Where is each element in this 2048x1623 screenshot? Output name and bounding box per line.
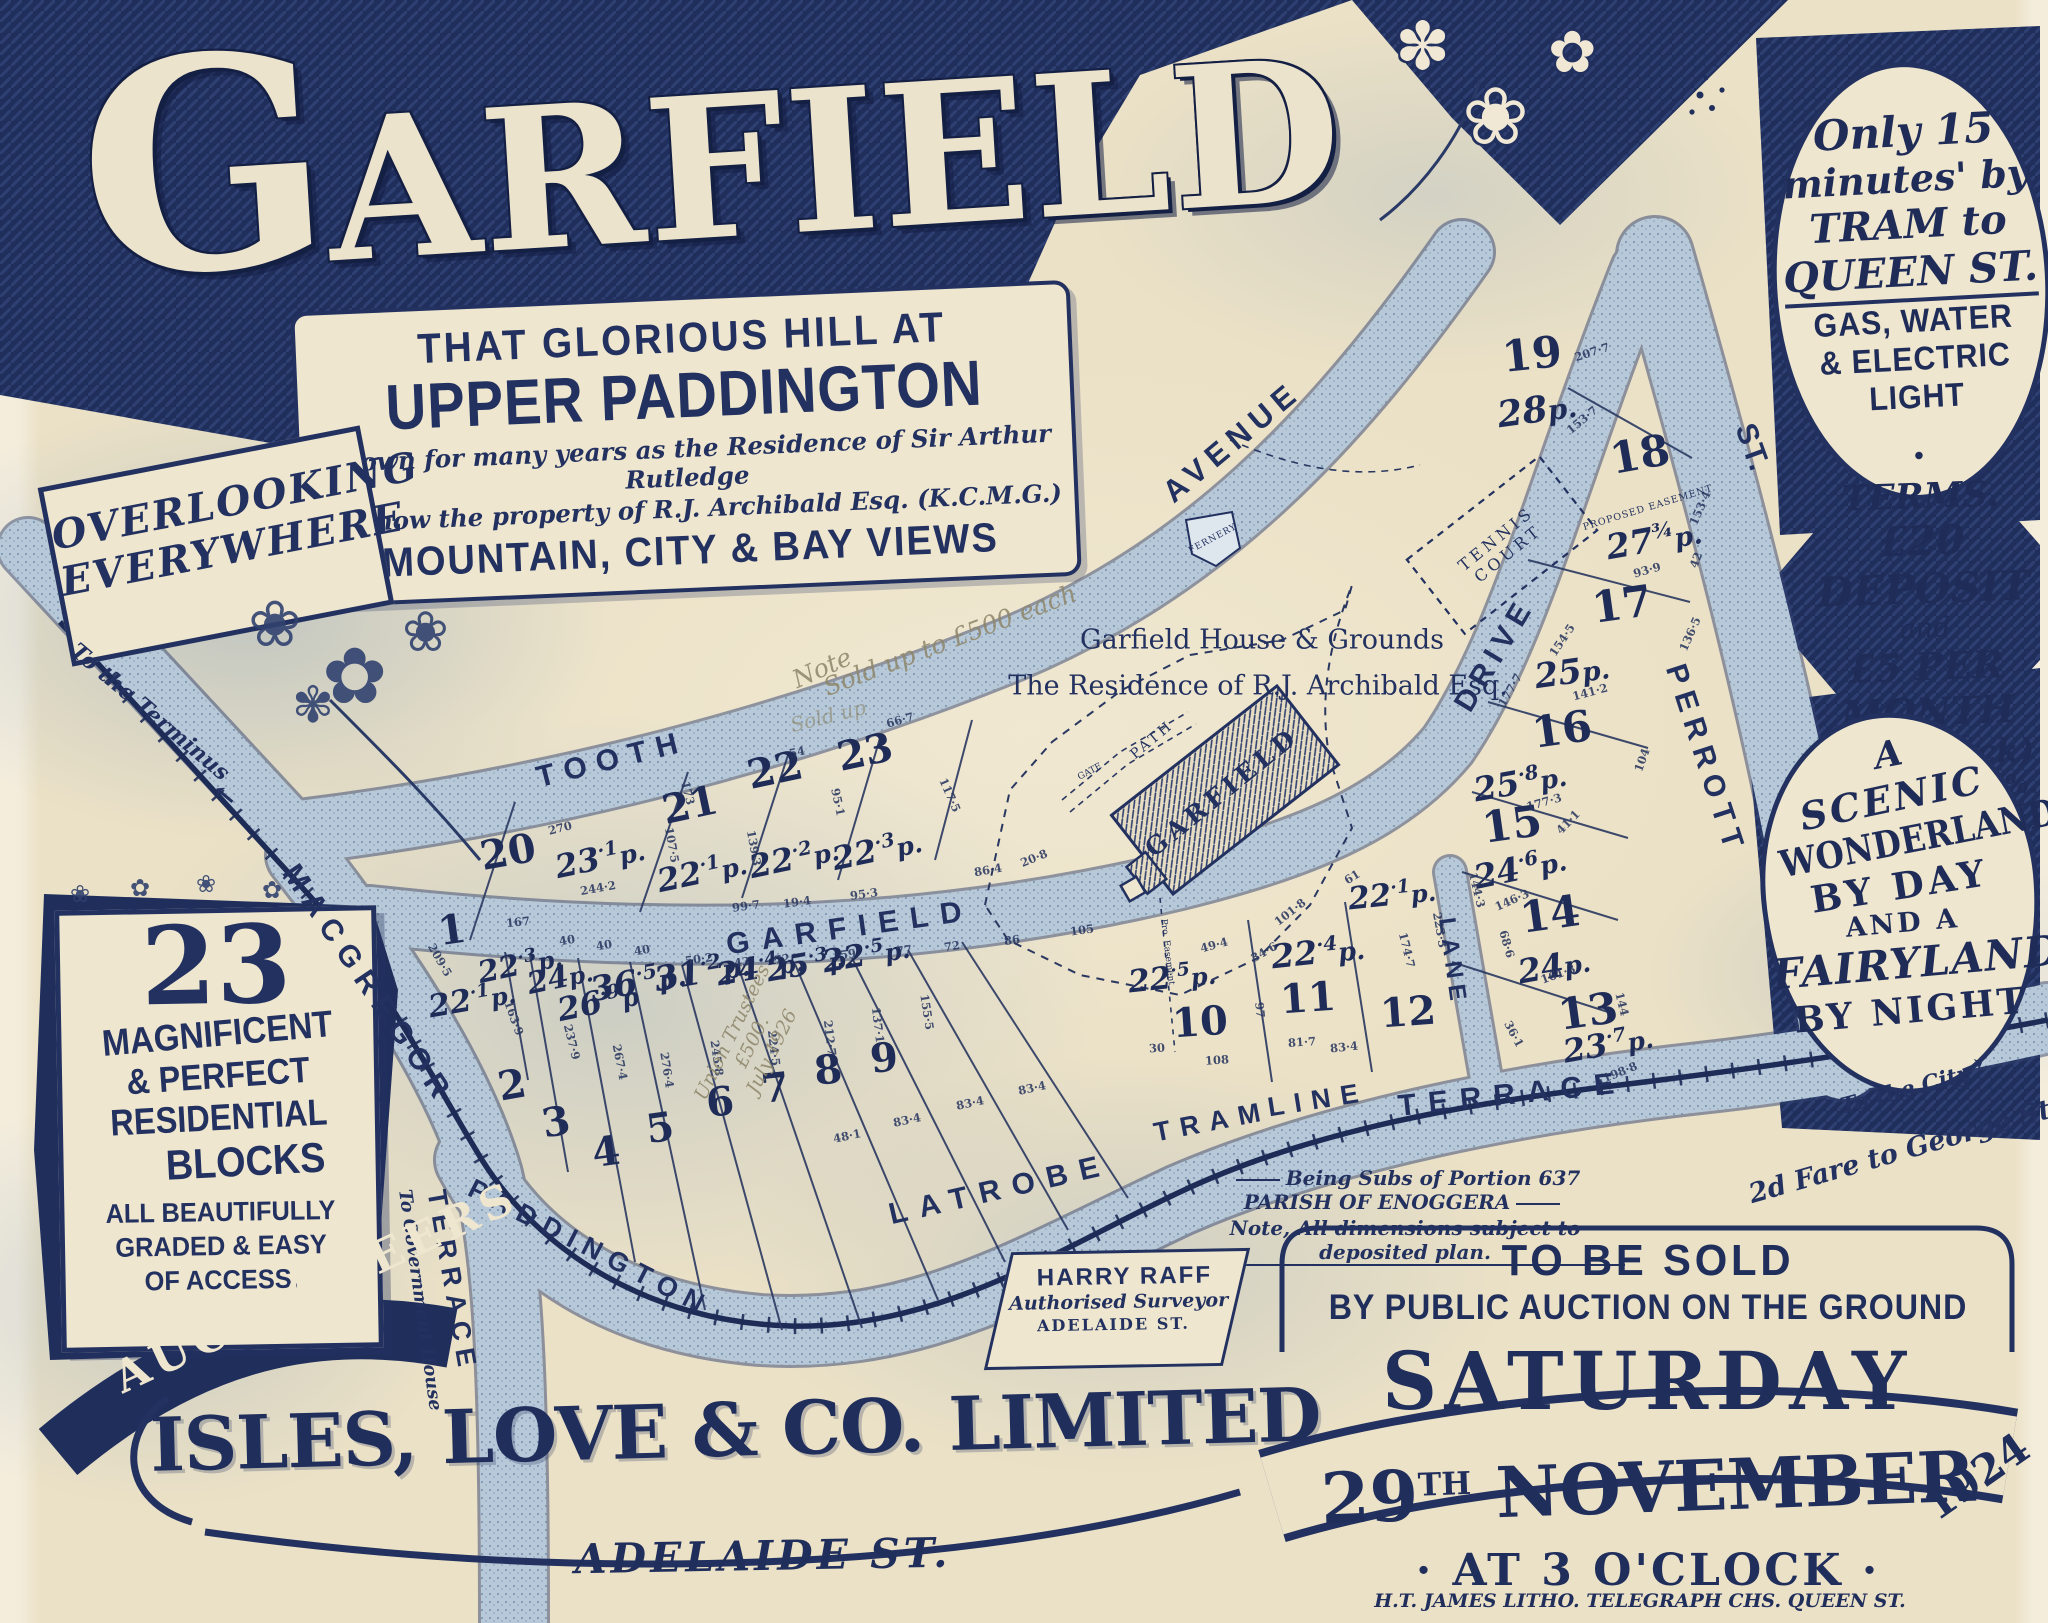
- lot-number: 20: [477, 824, 540, 880]
- lot-area-unit: p.: [1625, 1024, 1656, 1057]
- flower-icon: ❀: [1462, 70, 1529, 163]
- litho-credit: H.T. JAMES LITHO. TELEGRAPH CHS. QUEEN S…: [1250, 1590, 2030, 1612]
- lot-number: 10: [1171, 997, 1230, 1048]
- dimension-label: 108: [1205, 1052, 1230, 1068]
- surveyor-name: HARRY RAFF: [1008, 1261, 1241, 1293]
- lot-area-fraction: ·4: [1315, 931, 1338, 957]
- auction-date: 29TH NOVEMBER: [1267, 1433, 2029, 1542]
- auction-time: · AT 3 O'CLOCK ·: [1268, 1545, 2028, 1596]
- flower-icon: ✾: [292, 676, 334, 734]
- lot-area-unit: p.: [616, 837, 648, 871]
- lot-area-unit: p.: [1337, 936, 1367, 969]
- auction-line-2: BY PUBLIC AUCTION ON THE GROUND: [1298, 1288, 1997, 1328]
- poster: GARFIELD THAT GLORIOUS HILL AT UPPER PAD…: [0, 0, 2048, 1623]
- house-label: The Residence of R.J. Archibald Esq.: [1008, 671, 1508, 702]
- lot-area-fraction: ·1: [595, 836, 619, 863]
- flower-icon: ❀: [402, 600, 449, 665]
- dimension-label: 40: [633, 942, 651, 959]
- terms-line-2: £20 DEPOSIT: [1785, 512, 2048, 617]
- auction-day: SATURDAY: [1287, 1334, 2009, 1428]
- dimension-label: 97: [1252, 1001, 1268, 1018]
- lot-area-fraction: ·8: [1516, 759, 1541, 786]
- subs-note: Being Subs of Portion 637 PARISH OF ENOG…: [1185, 1166, 1625, 1214]
- lot-area-value: 22: [426, 982, 475, 1025]
- date-number: 29: [1319, 1454, 1419, 1540]
- dimension-label: 72: [773, 951, 791, 967]
- flower-icon: ✽: [1395, 8, 1450, 85]
- date-ordinal: TH: [1417, 1465, 1471, 1504]
- lot-area-fraction: ·3: [872, 828, 896, 855]
- surveyor-role: Authorised Surveyor: [1002, 1289, 1235, 1315]
- lot-number: 18: [1606, 425, 1674, 485]
- house-label: Garfield House & Grounds: [1080, 625, 1444, 656]
- lot-area-fraction: ·7: [1604, 1022, 1628, 1048]
- lot-number: 11: [1279, 973, 1338, 1024]
- auction-line-1: TO BE SOLD: [1287, 1236, 2009, 1286]
- lot-area-value: 22: [1269, 933, 1319, 977]
- lot-area-fraction: ·1: [1389, 876, 1411, 899]
- title-initial: G: [70, 0, 336, 344]
- surveyor-box: HARRY RAFF Authorised Surveyor ADELAIDE …: [984, 1248, 1250, 1370]
- lot-area-unit: p.: [718, 851, 750, 885]
- dimension-label: 59: [839, 946, 857, 962]
- rule-line: [1516, 1203, 1560, 1205]
- lot-area-fraction: ¾: [1650, 517, 1675, 544]
- lot-area-fraction: ·1: [697, 850, 721, 877]
- dimension-label: 43: [733, 954, 751, 970]
- auctioneer-address: ADELAIDE ST.: [528, 1528, 999, 1584]
- lot-area-unit: p.: [1189, 960, 1217, 991]
- surveyor-address: ADELAIDE ST.: [997, 1313, 1230, 1336]
- dimension-label: 30: [1149, 1040, 1166, 1055]
- lot-number: 16: [1529, 701, 1595, 759]
- dimension-label: 77: [895, 942, 913, 958]
- subs-note-text: Being Subs of Portion 637 PARISH OF ENOG…: [1244, 1166, 1581, 1214]
- dimension-label: 40: [595, 937, 613, 954]
- rule-line: [1236, 1179, 1280, 1181]
- lot-area-value: 36: [587, 963, 641, 1011]
- lot-number: 12: [1379, 987, 1438, 1038]
- lot-area-value: 23: [1560, 1025, 1610, 1070]
- flower-icon: ❀: [196, 870, 216, 898]
- lot-area-value: 28: [1495, 388, 1550, 437]
- flower-icon: ❀: [248, 588, 302, 662]
- dimension-label: 167: [505, 914, 530, 930]
- lot-area-fraction: ·2: [789, 836, 813, 863]
- lot-number: 19: [1500, 327, 1565, 383]
- auction-details: TO BE SOLD BY PUBLIC AUCTION ON THE GROU…: [1268, 1228, 2028, 1596]
- flower-icon: ✿: [130, 874, 150, 902]
- lot-area-fraction: ·6: [1515, 845, 1540, 873]
- dimension-label: 81·7: [1288, 1034, 1317, 1050]
- lot-area-value: 25: [1471, 763, 1523, 809]
- blocks-word-5: ALL BEAUTIFULLY: [74, 1194, 368, 1230]
- dimension-label: 83·4: [1329, 1039, 1358, 1056]
- dimension-label: 86: [1003, 932, 1021, 948]
- flower-icon: ❀: [70, 880, 90, 908]
- lot-number: 17: [1589, 576, 1655, 634]
- date-month: NOVEMBER: [1470, 1435, 1977, 1536]
- dimension-label: 40: [558, 932, 576, 949]
- lot-area-unit: p.: [893, 829, 925, 863]
- dimension-label: 72: [943, 938, 961, 954]
- lot-area-unit: p.: [1409, 877, 1437, 908]
- flower-icon: ✿: [1548, 18, 1597, 86]
